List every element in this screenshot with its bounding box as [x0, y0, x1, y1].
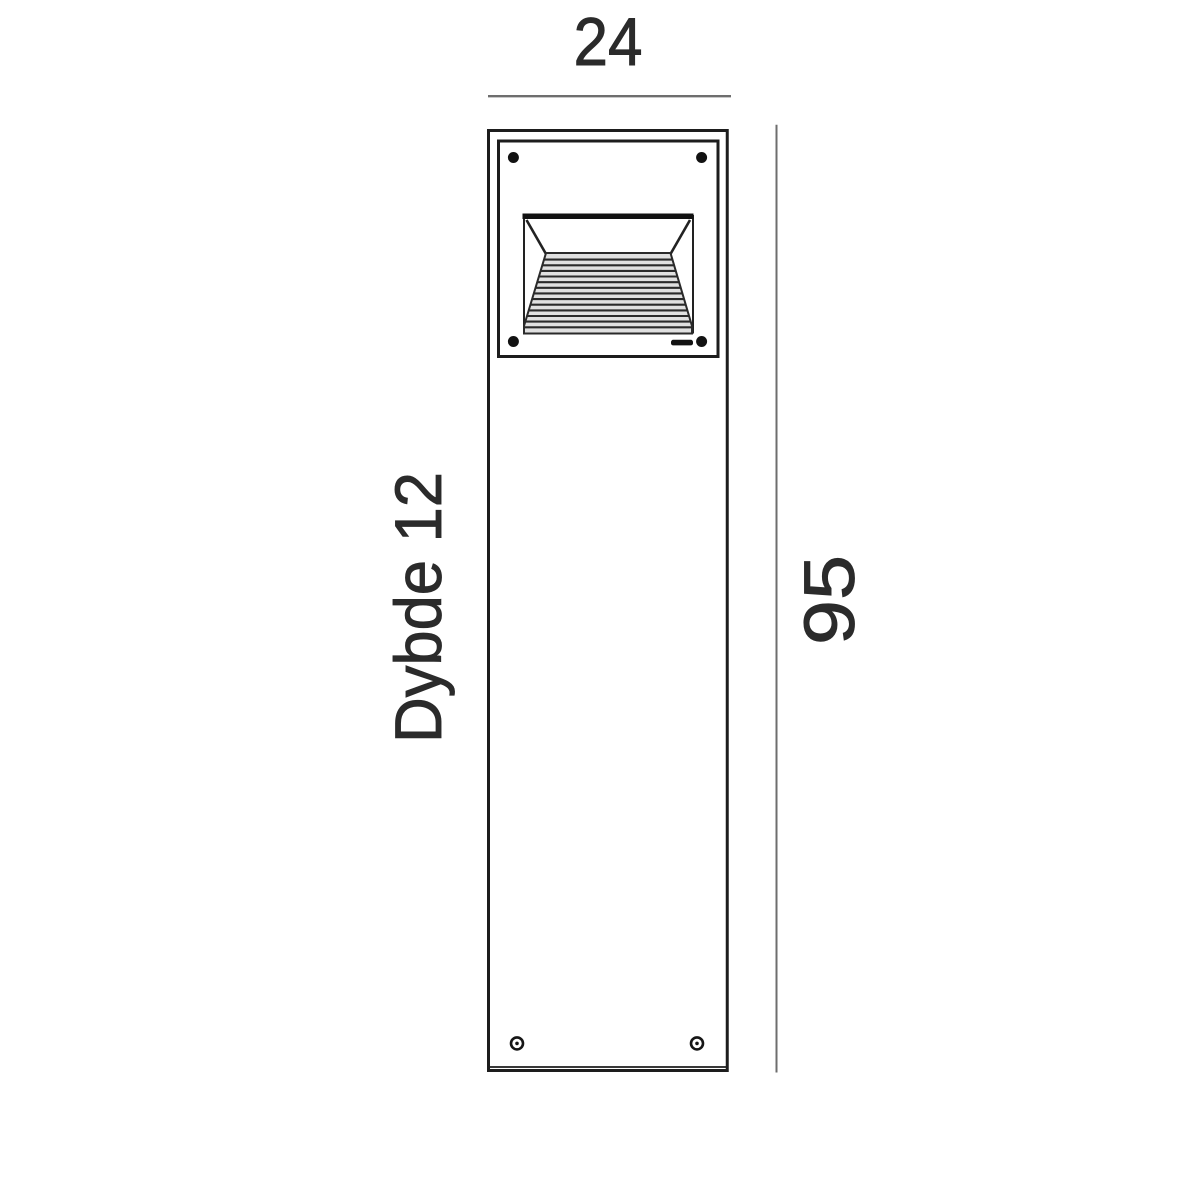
svg-text:Dybde 12: Dybde 12 [381, 472, 455, 743]
svg-text:95: 95 [791, 555, 870, 645]
svg-text:24: 24 [574, 4, 643, 80]
